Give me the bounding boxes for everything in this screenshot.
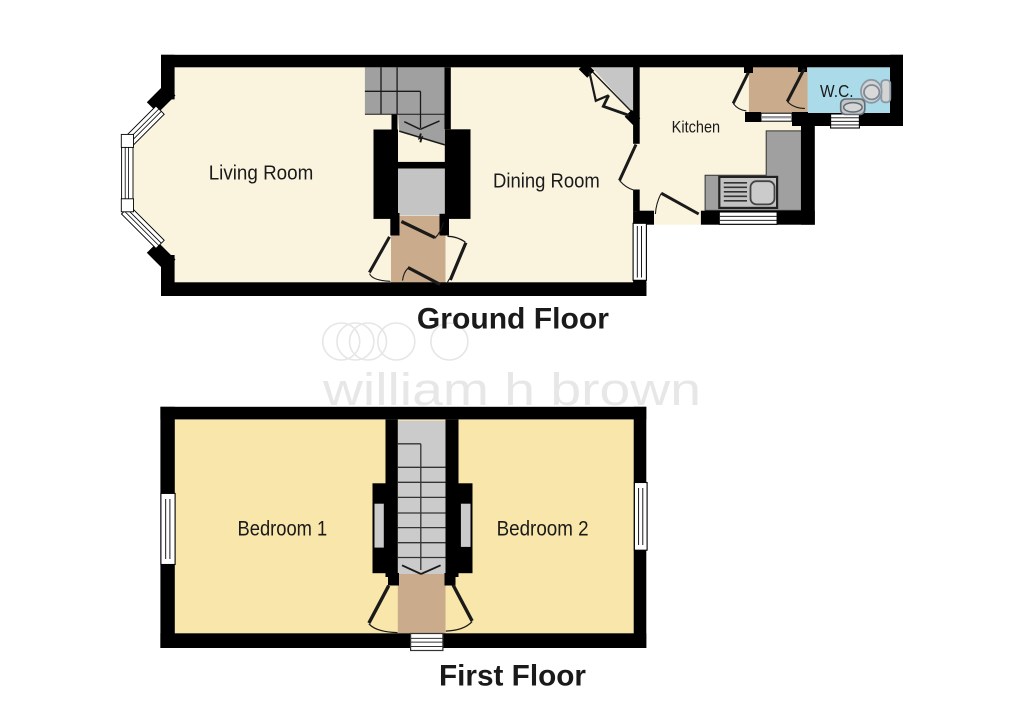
svg-text:Dining Room: Dining Room [493, 169, 600, 192]
svg-text:Kitchen: Kitchen [672, 118, 721, 136]
svg-text:Bedroom 2: Bedroom 2 [497, 517, 589, 540]
svg-text:Bedroom 1: Bedroom 1 [238, 517, 328, 540]
svg-text:Ground Floor: Ground Floor [417, 303, 610, 336]
svg-text:W.C.: W.C. [820, 81, 854, 101]
svg-text:First Floor: First Floor [439, 660, 586, 693]
svg-text:Living Room: Living Room [209, 162, 314, 185]
